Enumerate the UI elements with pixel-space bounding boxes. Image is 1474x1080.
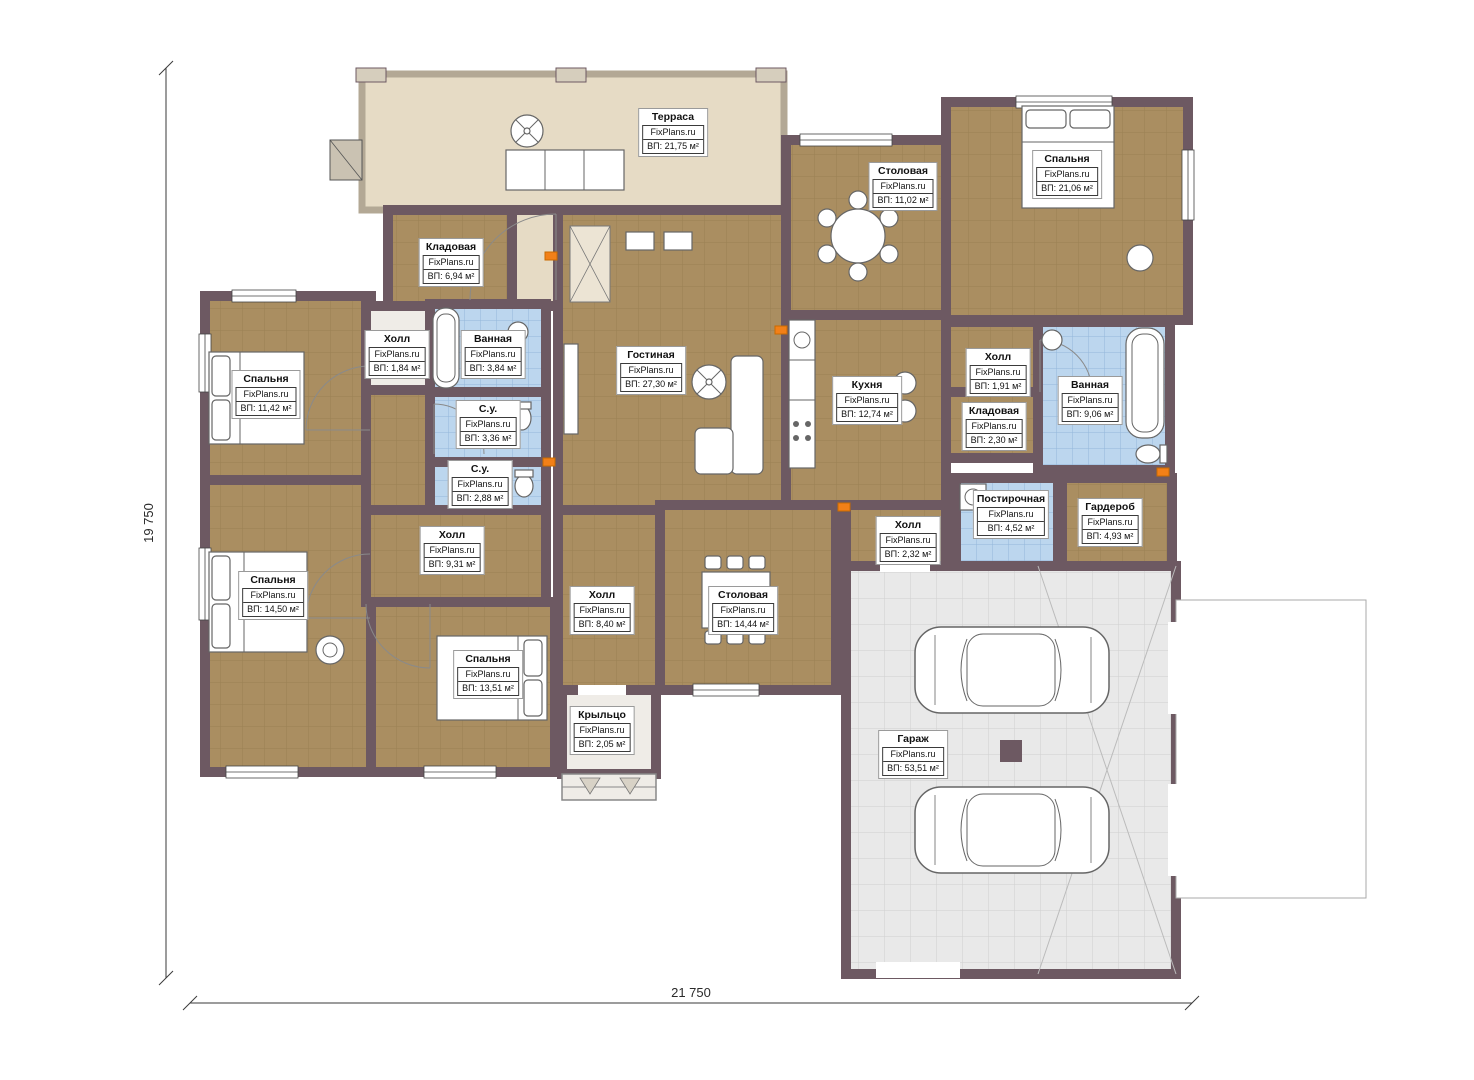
room-area: ВП: 14,50 м² (243, 602, 303, 616)
room-label-bedroom-bottom: Спальня FixPlans.ru ВП: 13,51 м² (453, 650, 523, 699)
room-name: Столовая (712, 589, 774, 602)
brand-watermark: FixPlans.ru (883, 748, 943, 761)
brand-watermark: FixPlans.ru (1063, 394, 1118, 407)
dimension-bottom: 21 750 (183, 985, 1199, 1010)
room-label-storage-top: Кладовая FixPlans.ru ВП: 6,94 м² (419, 238, 484, 287)
room-label-bedroom-l2: Спальня FixPlans.ru ВП: 14,50 м² (238, 571, 308, 620)
room-name: Ванная (1062, 379, 1119, 392)
room-label-living: Гостиная FixPlans.ru ВП: 27,30 м² (616, 346, 686, 395)
room-area: ВП: 2,05 м² (575, 737, 630, 751)
room-area: ВП: 11,02 м² (873, 193, 932, 207)
brand-watermark: FixPlans.ru (967, 420, 1022, 433)
room-name: Крыльцо (574, 709, 631, 722)
door-opening (578, 685, 626, 695)
room-area: ВП: 27,30 м² (621, 377, 681, 391)
room-label-garage: Гараж FixPlans.ru ВП: 53,51 м² (878, 730, 948, 779)
bathtub (433, 308, 459, 388)
brand-watermark: FixPlans.ru (1083, 516, 1138, 529)
room-name: Холл (424, 529, 481, 542)
ceiling-fan-icon (511, 115, 543, 147)
room-name: Холл (880, 519, 937, 532)
brand-watermark: FixPlans.ru (370, 348, 425, 361)
kitchen-counter (789, 320, 815, 468)
room-label-dining-top: Столовая FixPlans.ru ВП: 11,02 м² (868, 162, 937, 211)
vent-box (626, 232, 654, 250)
room-label-porch: Крыльцо FixPlans.ru ВП: 2,05 м² (570, 706, 635, 755)
brand-watermark: FixPlans.ru (643, 126, 703, 139)
room-label-wc-2: С.у. FixPlans.ru ВП: 2,88 м² (448, 460, 513, 509)
room-area: ВП: 3,36 м² (461, 431, 516, 445)
rooms-layer (205, 102, 1366, 974)
ceiling-fan-icon (692, 365, 726, 399)
room-label-storage-right: Кладовая FixPlans.ru ВП: 2,30 м² (962, 402, 1027, 451)
car (915, 627, 1109, 713)
room-area: ВП: 8,40 м² (575, 617, 630, 631)
window (232, 290, 296, 302)
garage-door-opening (1168, 784, 1182, 876)
room-label-hall-right: Холл FixPlans.ru ВП: 1,91 м² (966, 348, 1031, 397)
room-name: Гардероб (1082, 501, 1139, 514)
room-area: ВП: 6,94 м² (424, 269, 479, 283)
brand-watermark: FixPlans.ru (236, 388, 295, 401)
room-area: ВП: 3,84 м² (466, 361, 521, 375)
brand-watermark: FixPlans.ru (575, 604, 630, 617)
car (915, 787, 1109, 873)
room-name: С.у. (460, 403, 517, 416)
brand-watermark: FixPlans.ru (978, 508, 1044, 521)
brand-watermark: FixPlans.ru (243, 589, 303, 602)
brand-watermark: FixPlans.ru (424, 256, 479, 269)
heater-marker (545, 252, 557, 260)
room-name: Спальня (1036, 153, 1098, 166)
room-name: Постирочная (977, 493, 1045, 506)
toilet (515, 470, 533, 497)
room-label-terrace: Терраса FixPlans.ru ВП: 21,75 м² (638, 108, 708, 157)
room-area: ВП: 21,06 м² (1037, 181, 1097, 195)
room-label-hall-mid: Холл FixPlans.ru ВП: 8,40 м² (570, 586, 635, 635)
room-area: ВП: 4,52 м² (978, 521, 1044, 535)
room-label-bedroom-tr: Спальня FixPlans.ru ВП: 21,06 м² (1032, 150, 1102, 199)
room-name: Гостиная (620, 349, 682, 362)
room-area: ВП: 21,75 м² (643, 139, 703, 153)
room-name: Спальня (235, 373, 296, 386)
window (226, 766, 298, 778)
vent-box (664, 232, 692, 250)
hatch-box (570, 226, 610, 302)
brand-watermark: FixPlans.ru (881, 534, 936, 547)
room-area: ВП: 53,51 м² (883, 761, 943, 775)
room-name: Холл (970, 351, 1027, 364)
room-area: ВП: 9,06 м² (1063, 407, 1118, 421)
room-label-bedroom-l1: Спальня FixPlans.ru ВП: 11,42 м² (231, 370, 300, 419)
brand-watermark: FixPlans.ru (466, 348, 521, 361)
dimension-left: 19 750 (141, 61, 173, 985)
floor-plan-canvas: 19 750 21 750 (0, 0, 1474, 1080)
room-area: ВП: 11,42 м² (236, 401, 295, 415)
room-area: ВП: 1,84 м² (370, 361, 425, 375)
window (1182, 150, 1194, 220)
room-name: Холл (369, 333, 426, 346)
brand-watermark: FixPlans.ru (837, 394, 897, 407)
room-name: Холл (574, 589, 631, 602)
room-area: ВП: 9,31 м² (425, 557, 480, 571)
room-area: ВП: 12,74 м² (837, 407, 897, 421)
brand-watermark: FixPlans.ru (971, 366, 1026, 379)
room-name: Кладовая (966, 405, 1023, 418)
brand-watermark: FixPlans.ru (425, 544, 480, 557)
room-area: ВП: 4,93 м² (1083, 529, 1138, 543)
room-area: ВП: 1,91 м² (971, 379, 1026, 393)
heater-marker (1157, 468, 1169, 476)
room-name: Спальня (242, 574, 304, 587)
tv-sideboard (564, 344, 578, 434)
room-name: Кладовая (423, 241, 480, 254)
heater-marker (543, 458, 555, 466)
room-area: ВП: 2,88 м² (453, 491, 508, 505)
room-label-hall-small: Холл FixPlans.ru ВП: 2,32 м² (876, 516, 941, 565)
garage-column (1000, 740, 1022, 762)
brand-watermark: FixPlans.ru (453, 478, 508, 491)
room-name: Ванная (465, 333, 522, 346)
brand-watermark: FixPlans.ru (713, 604, 773, 617)
heater-marker (775, 326, 787, 334)
garage-door-opening (1168, 622, 1182, 714)
heater-marker (838, 503, 850, 511)
room-area: ВП: 14,44 м² (713, 617, 773, 631)
room-name: Гараж (882, 733, 944, 746)
sink (1042, 330, 1062, 350)
terrace-sofa (506, 150, 624, 190)
room-label-dining-mid: Столовая FixPlans.ru ВП: 14,44 м² (708, 586, 778, 635)
brand-watermark: FixPlans.ru (461, 418, 516, 431)
room-name: Кухня (836, 379, 898, 392)
brand-watermark: FixPlans.ru (575, 724, 630, 737)
room-label-bath-right: Ванная FixPlans.ru ВП: 9,06 м² (1058, 376, 1123, 425)
room-label-wc-1: С.у. FixPlans.ru ВП: 3,36 м² (456, 400, 521, 449)
floor-plan-page: 19 750 21 750 Терраса FixPlans.ru ВП: 21… (0, 0, 1474, 1080)
bathtub (1126, 328, 1164, 438)
room-name: С.у. (452, 463, 509, 476)
room-hall-center-v (366, 390, 430, 512)
room-area: ВП: 13,51 м² (458, 681, 518, 695)
brand-watermark: FixPlans.ru (458, 668, 518, 681)
room-name: Спальня (457, 653, 519, 666)
room-label-wardrobe: Гардероб FixPlans.ru ВП: 4,93 м² (1078, 498, 1143, 547)
room-label-hall-center: Холл FixPlans.ru ВП: 9,31 м² (420, 526, 485, 575)
room-label-laundry: Постирочная FixPlans.ru ВП: 4,52 м² (973, 490, 1049, 539)
room-area: ВП: 2,30 м² (967, 433, 1022, 447)
room-label-kitchen: Кухня FixPlans.ru ВП: 12,74 м² (832, 376, 902, 425)
brand-watermark: FixPlans.ru (1037, 168, 1097, 181)
window (800, 134, 892, 146)
brand-watermark: FixPlans.ru (873, 180, 932, 193)
room-area: ВП: 2,32 м² (881, 547, 936, 561)
dimension-left-value: 19 750 (141, 503, 156, 543)
side-table (1127, 245, 1153, 271)
toilet (1136, 445, 1167, 463)
armchair (316, 636, 344, 664)
room-name: Столовая (872, 165, 933, 178)
room-label-hall-left: Холл FixPlans.ru ВП: 1,84 м² (365, 330, 430, 379)
window (693, 684, 759, 696)
room-name: Терраса (642, 111, 704, 124)
dimension-bottom-value: 21 750 (671, 985, 711, 1000)
brand-watermark: FixPlans.ru (621, 364, 681, 377)
window (424, 766, 496, 778)
driveway (1176, 600, 1366, 898)
room-label-bath-left: Ванная FixPlans.ru ВП: 3,84 м² (461, 330, 526, 379)
garage-door-opening (876, 962, 960, 978)
